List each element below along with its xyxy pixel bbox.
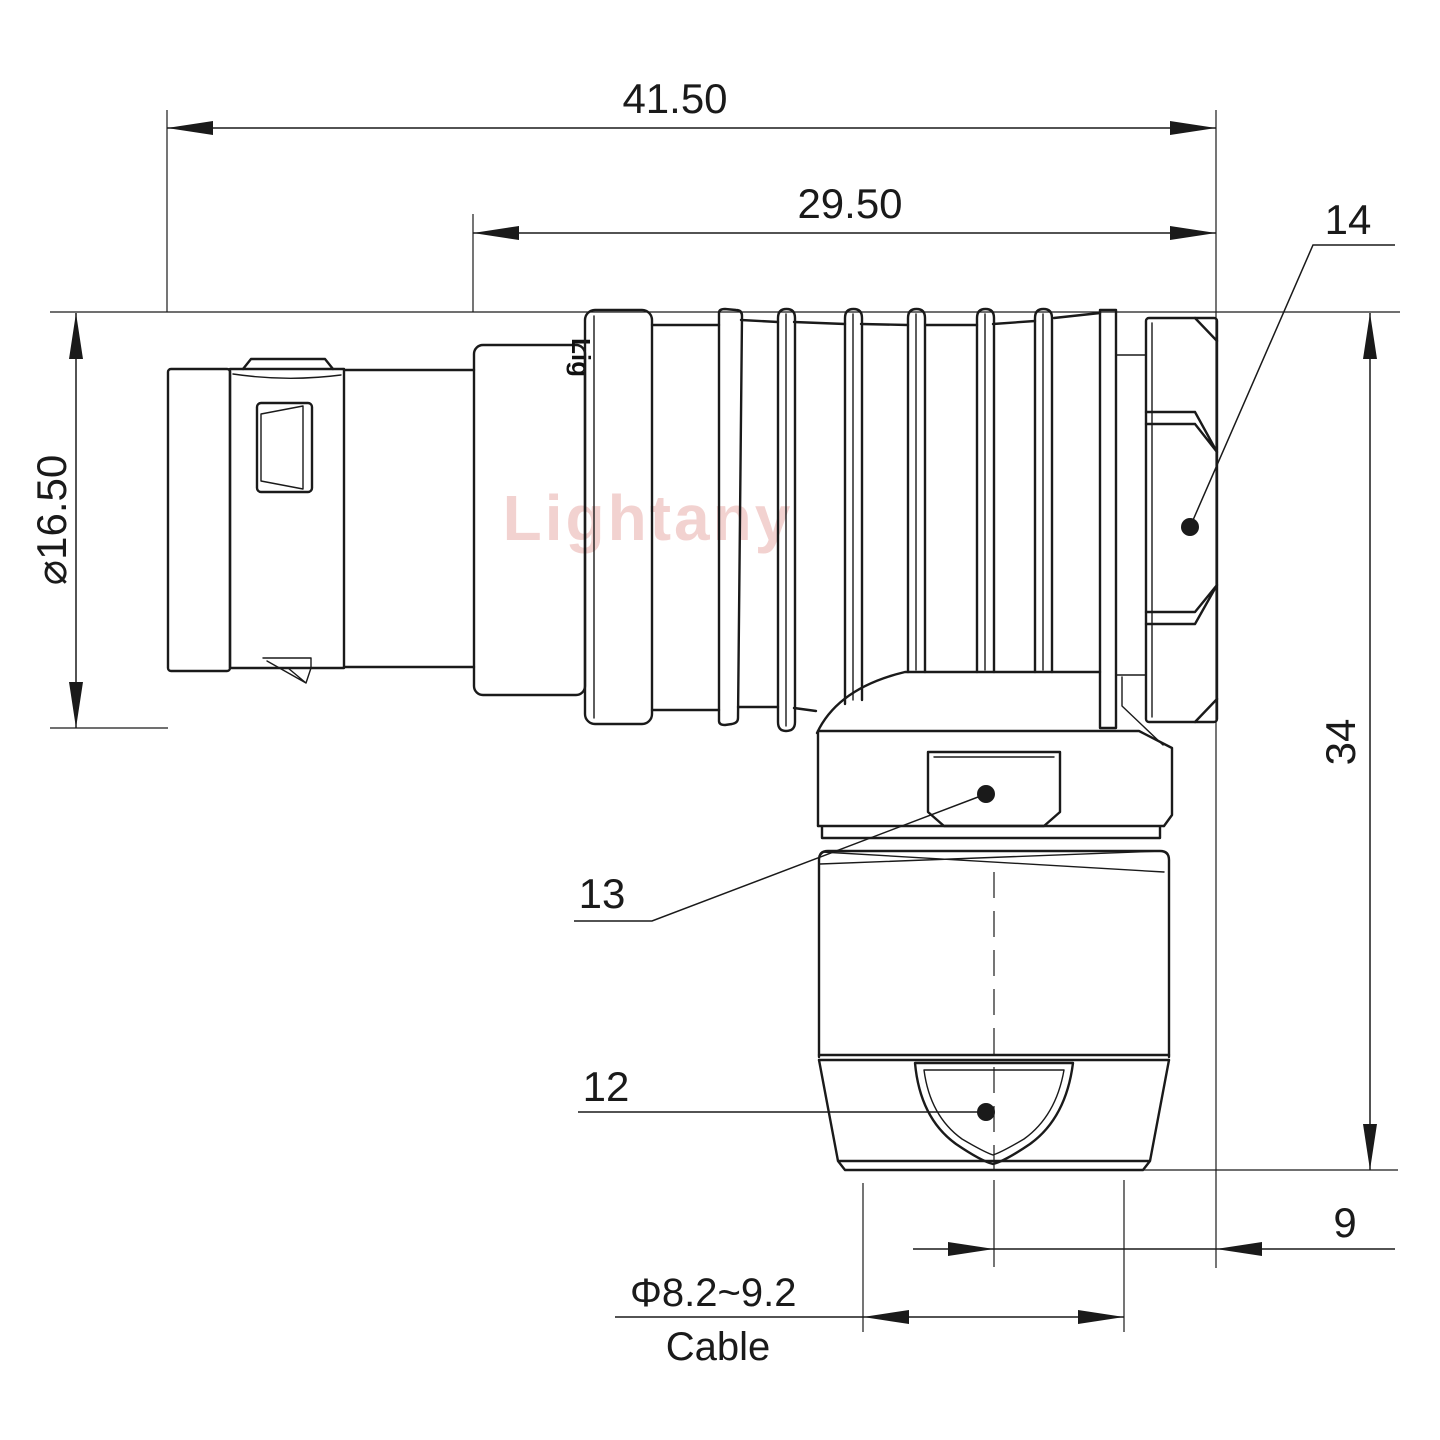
callout-dots bbox=[977, 518, 1199, 1121]
dot-13 bbox=[977, 785, 995, 803]
connector-drawing-svg: Lightany Lig bbox=[0, 0, 1440, 1440]
nut-neck-steps bbox=[1116, 355, 1146, 675]
key-window bbox=[257, 403, 312, 492]
technical-drawing-canvas: Lightany Lig bbox=[0, 0, 1440, 1440]
dot-12 bbox=[977, 1103, 995, 1121]
thread-swirl bbox=[820, 851, 1164, 872]
callout-texts: 14 13 12 bbox=[579, 196, 1372, 1110]
dim-text-overall-length: 41.50 bbox=[622, 75, 727, 122]
latch-detail bbox=[263, 658, 311, 683]
callout-text-13: 13 bbox=[579, 870, 626, 917]
dot-14 bbox=[1181, 518, 1199, 536]
neck-lines bbox=[344, 370, 474, 667]
washer-band bbox=[818, 826, 1164, 838]
callout-text-14: 14 bbox=[1325, 196, 1372, 243]
leader-14 bbox=[1190, 245, 1395, 527]
dim-text-cable-range: Φ8.2~9.2 bbox=[630, 1271, 796, 1315]
cable-gland bbox=[819, 851, 1169, 1175]
watermark-text: Lightany bbox=[503, 482, 794, 554]
part-marking-text: Lig bbox=[566, 338, 596, 377]
dim-text-rear-length: 29.50 bbox=[797, 180, 902, 227]
boot-end-flange bbox=[1100, 310, 1116, 728]
dim-text-cable-label: Cable bbox=[666, 1325, 771, 1369]
coupling-nut-hex bbox=[1146, 318, 1217, 722]
elbow-hex-window bbox=[928, 752, 1060, 826]
front-plug bbox=[168, 359, 474, 683]
dim-text-height: 34 bbox=[1317, 719, 1364, 766]
dim-text-shell-diameter: ⌀16.50 bbox=[28, 455, 75, 585]
dim-text-exit-offset: 9 bbox=[1333, 1199, 1356, 1246]
callout-text-12: 12 bbox=[583, 1063, 630, 1110]
elbow-body bbox=[818, 677, 1172, 838]
